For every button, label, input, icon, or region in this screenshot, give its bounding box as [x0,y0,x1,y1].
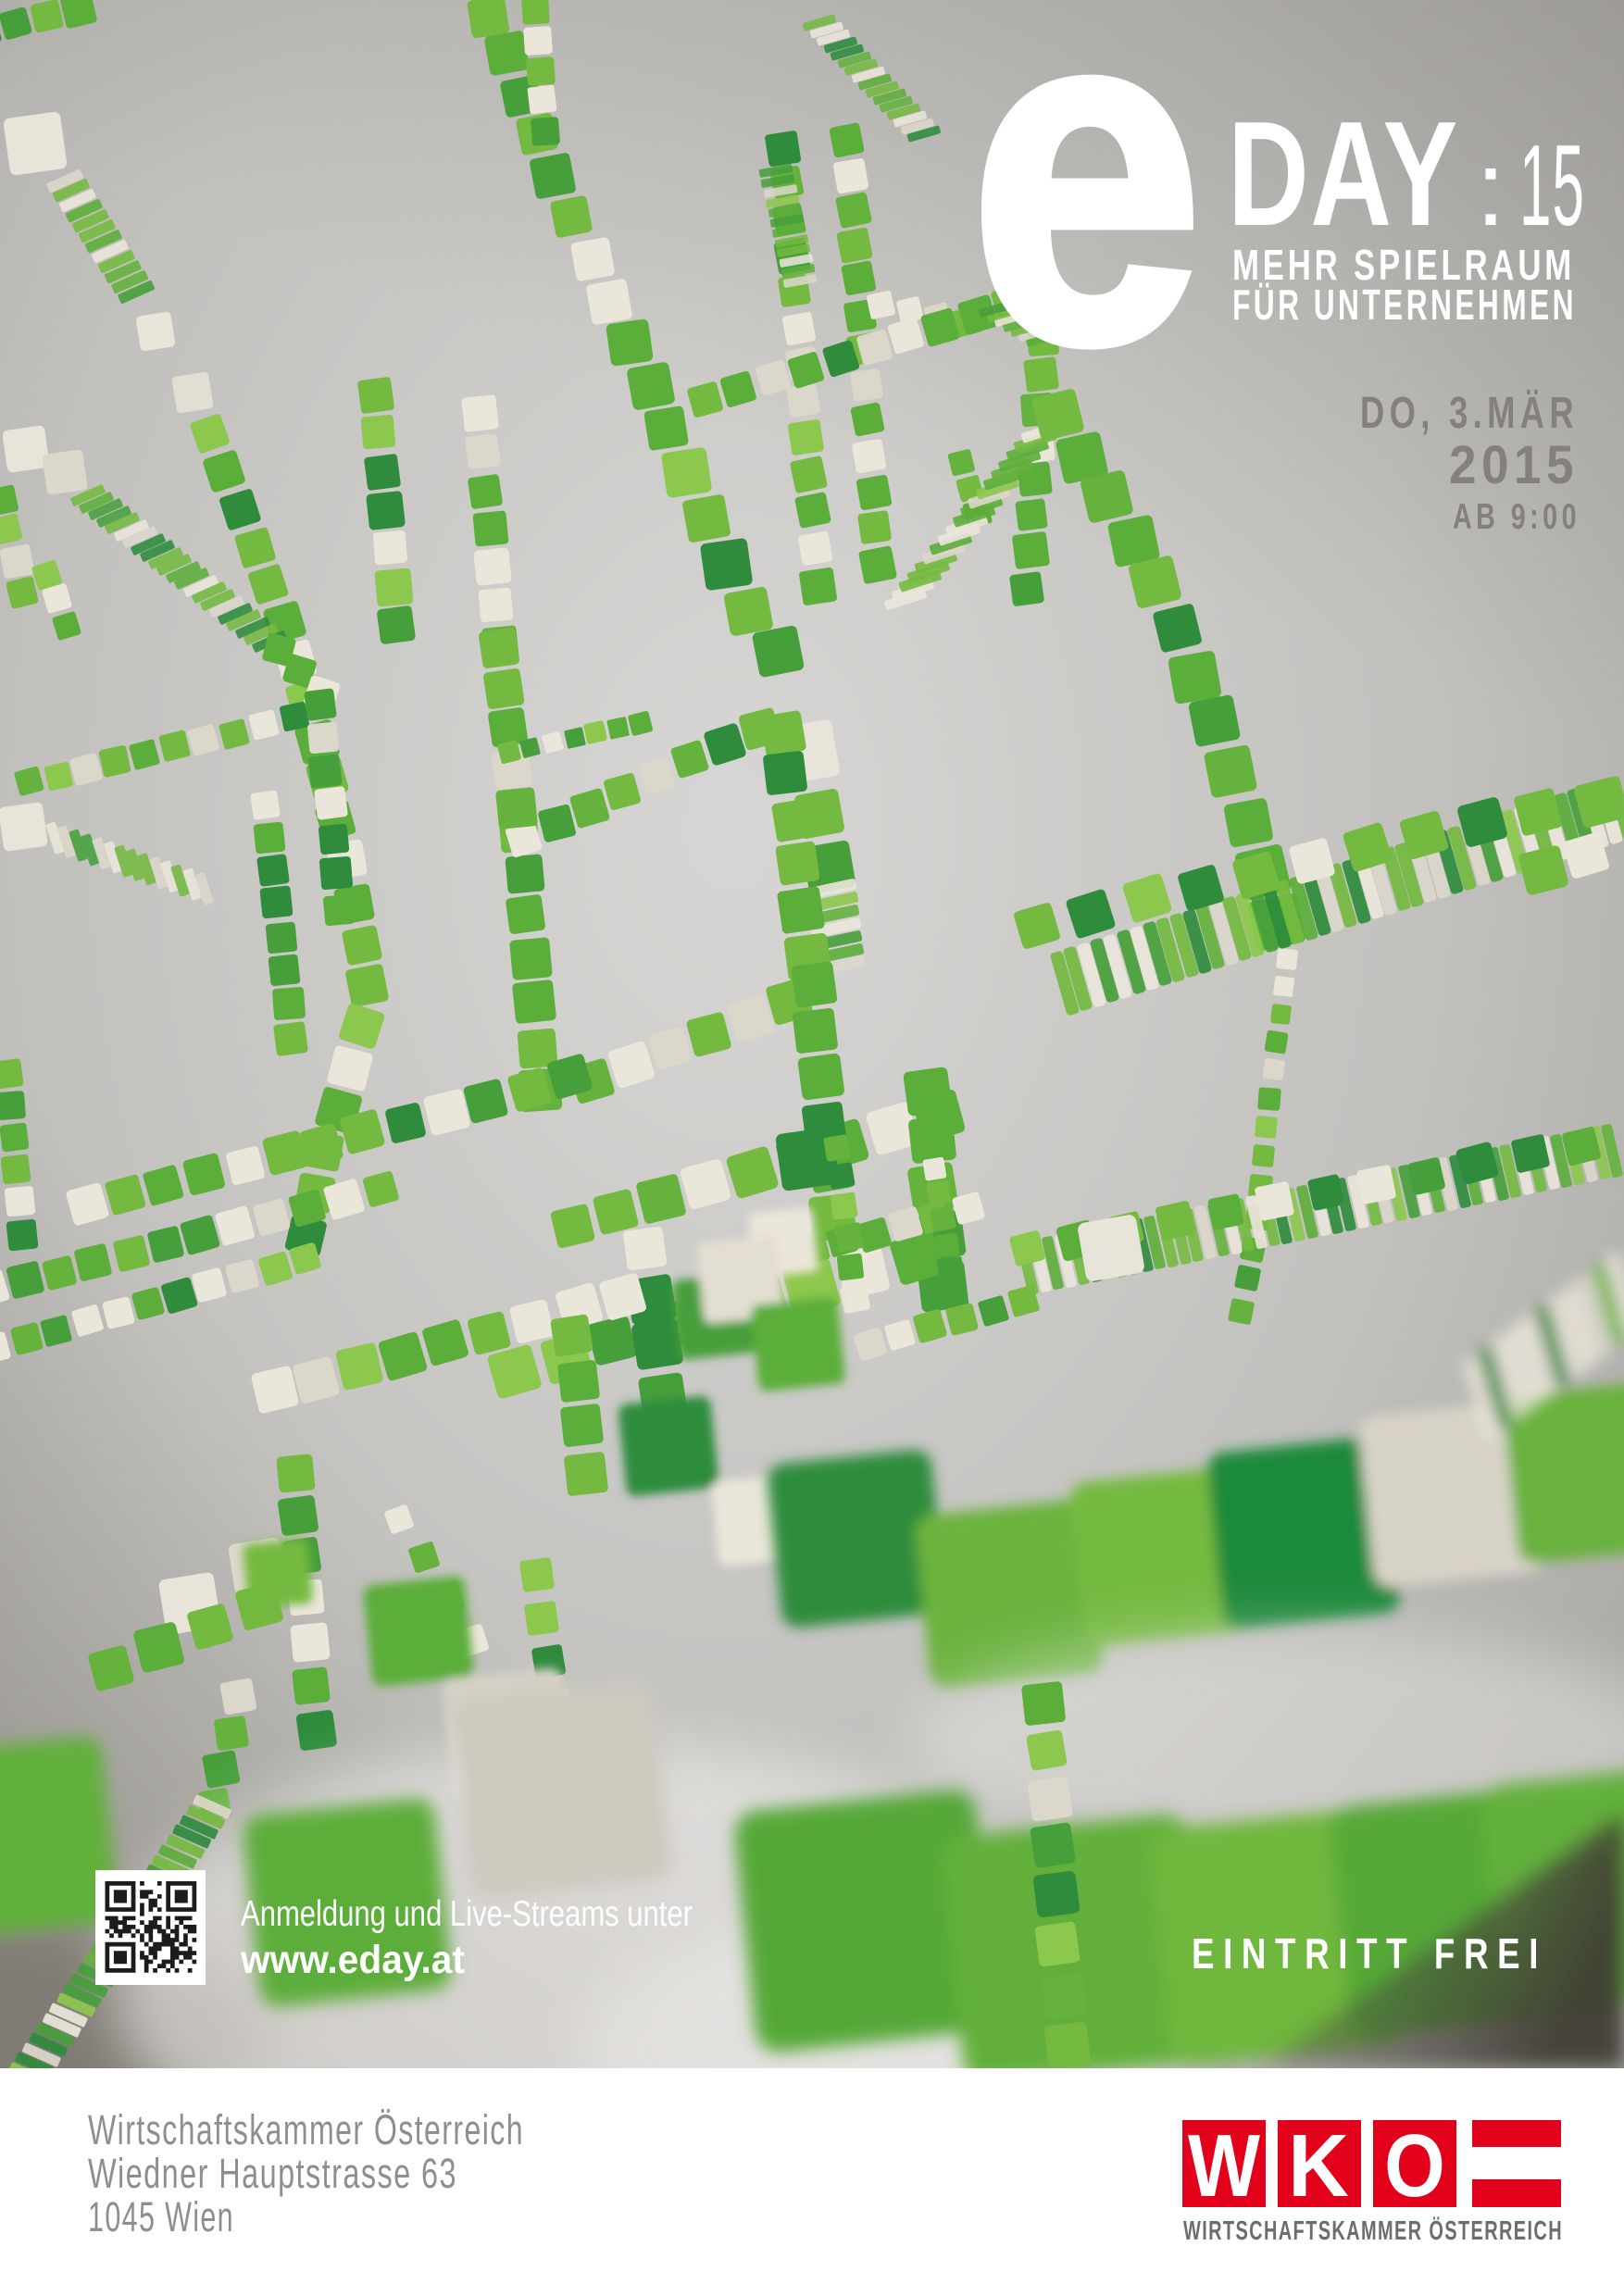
svg-text:Wirtschaftskammer Österreich: Wirtschaftskammer Österreich [88,2106,524,2153]
svg-text:FÜR UNTERNEHMEN: FÜR UNTERNEHMEN [1232,281,1577,329]
svg-text:AB 9:00: AB 9:00 [1453,497,1580,537]
svg-text:e: e [969,0,1204,443]
svg-text:WIRTSCHAFTSKAMMER ÖSTERREICH: WIRTSCHAFTSKAMMER ÖSTERREICH [1183,2215,1563,2246]
svg-text:www.eday.at: www.eday.at [240,1938,465,1982]
svg-text:DO, 3.MÄR: DO, 3.MÄR [1360,389,1579,438]
svg-text:O: O [1384,2116,1445,2215]
svg-text:DAY: DAY [1228,92,1459,257]
svg-text:Wiedner Hauptstrasse 63: Wiedner Hauptstrasse 63 [88,2150,457,2197]
svg-text:K: K [1288,2115,1349,2215]
svg-text:W: W [1188,2115,1260,2215]
svg-text:1045 Wien: 1045 Wien [88,2193,234,2240]
svg-text::: : [1476,130,1505,248]
svg-text:15: 15 [1519,120,1585,249]
svg-text:2015: 2015 [1449,435,1579,495]
svg-text:EINTRITT FREI: EINTRITT FREI [1192,1929,1547,1978]
svg-text:Anmeldung und Live-Streams unt: Anmeldung und Live-Streams unter [241,1894,693,1934]
